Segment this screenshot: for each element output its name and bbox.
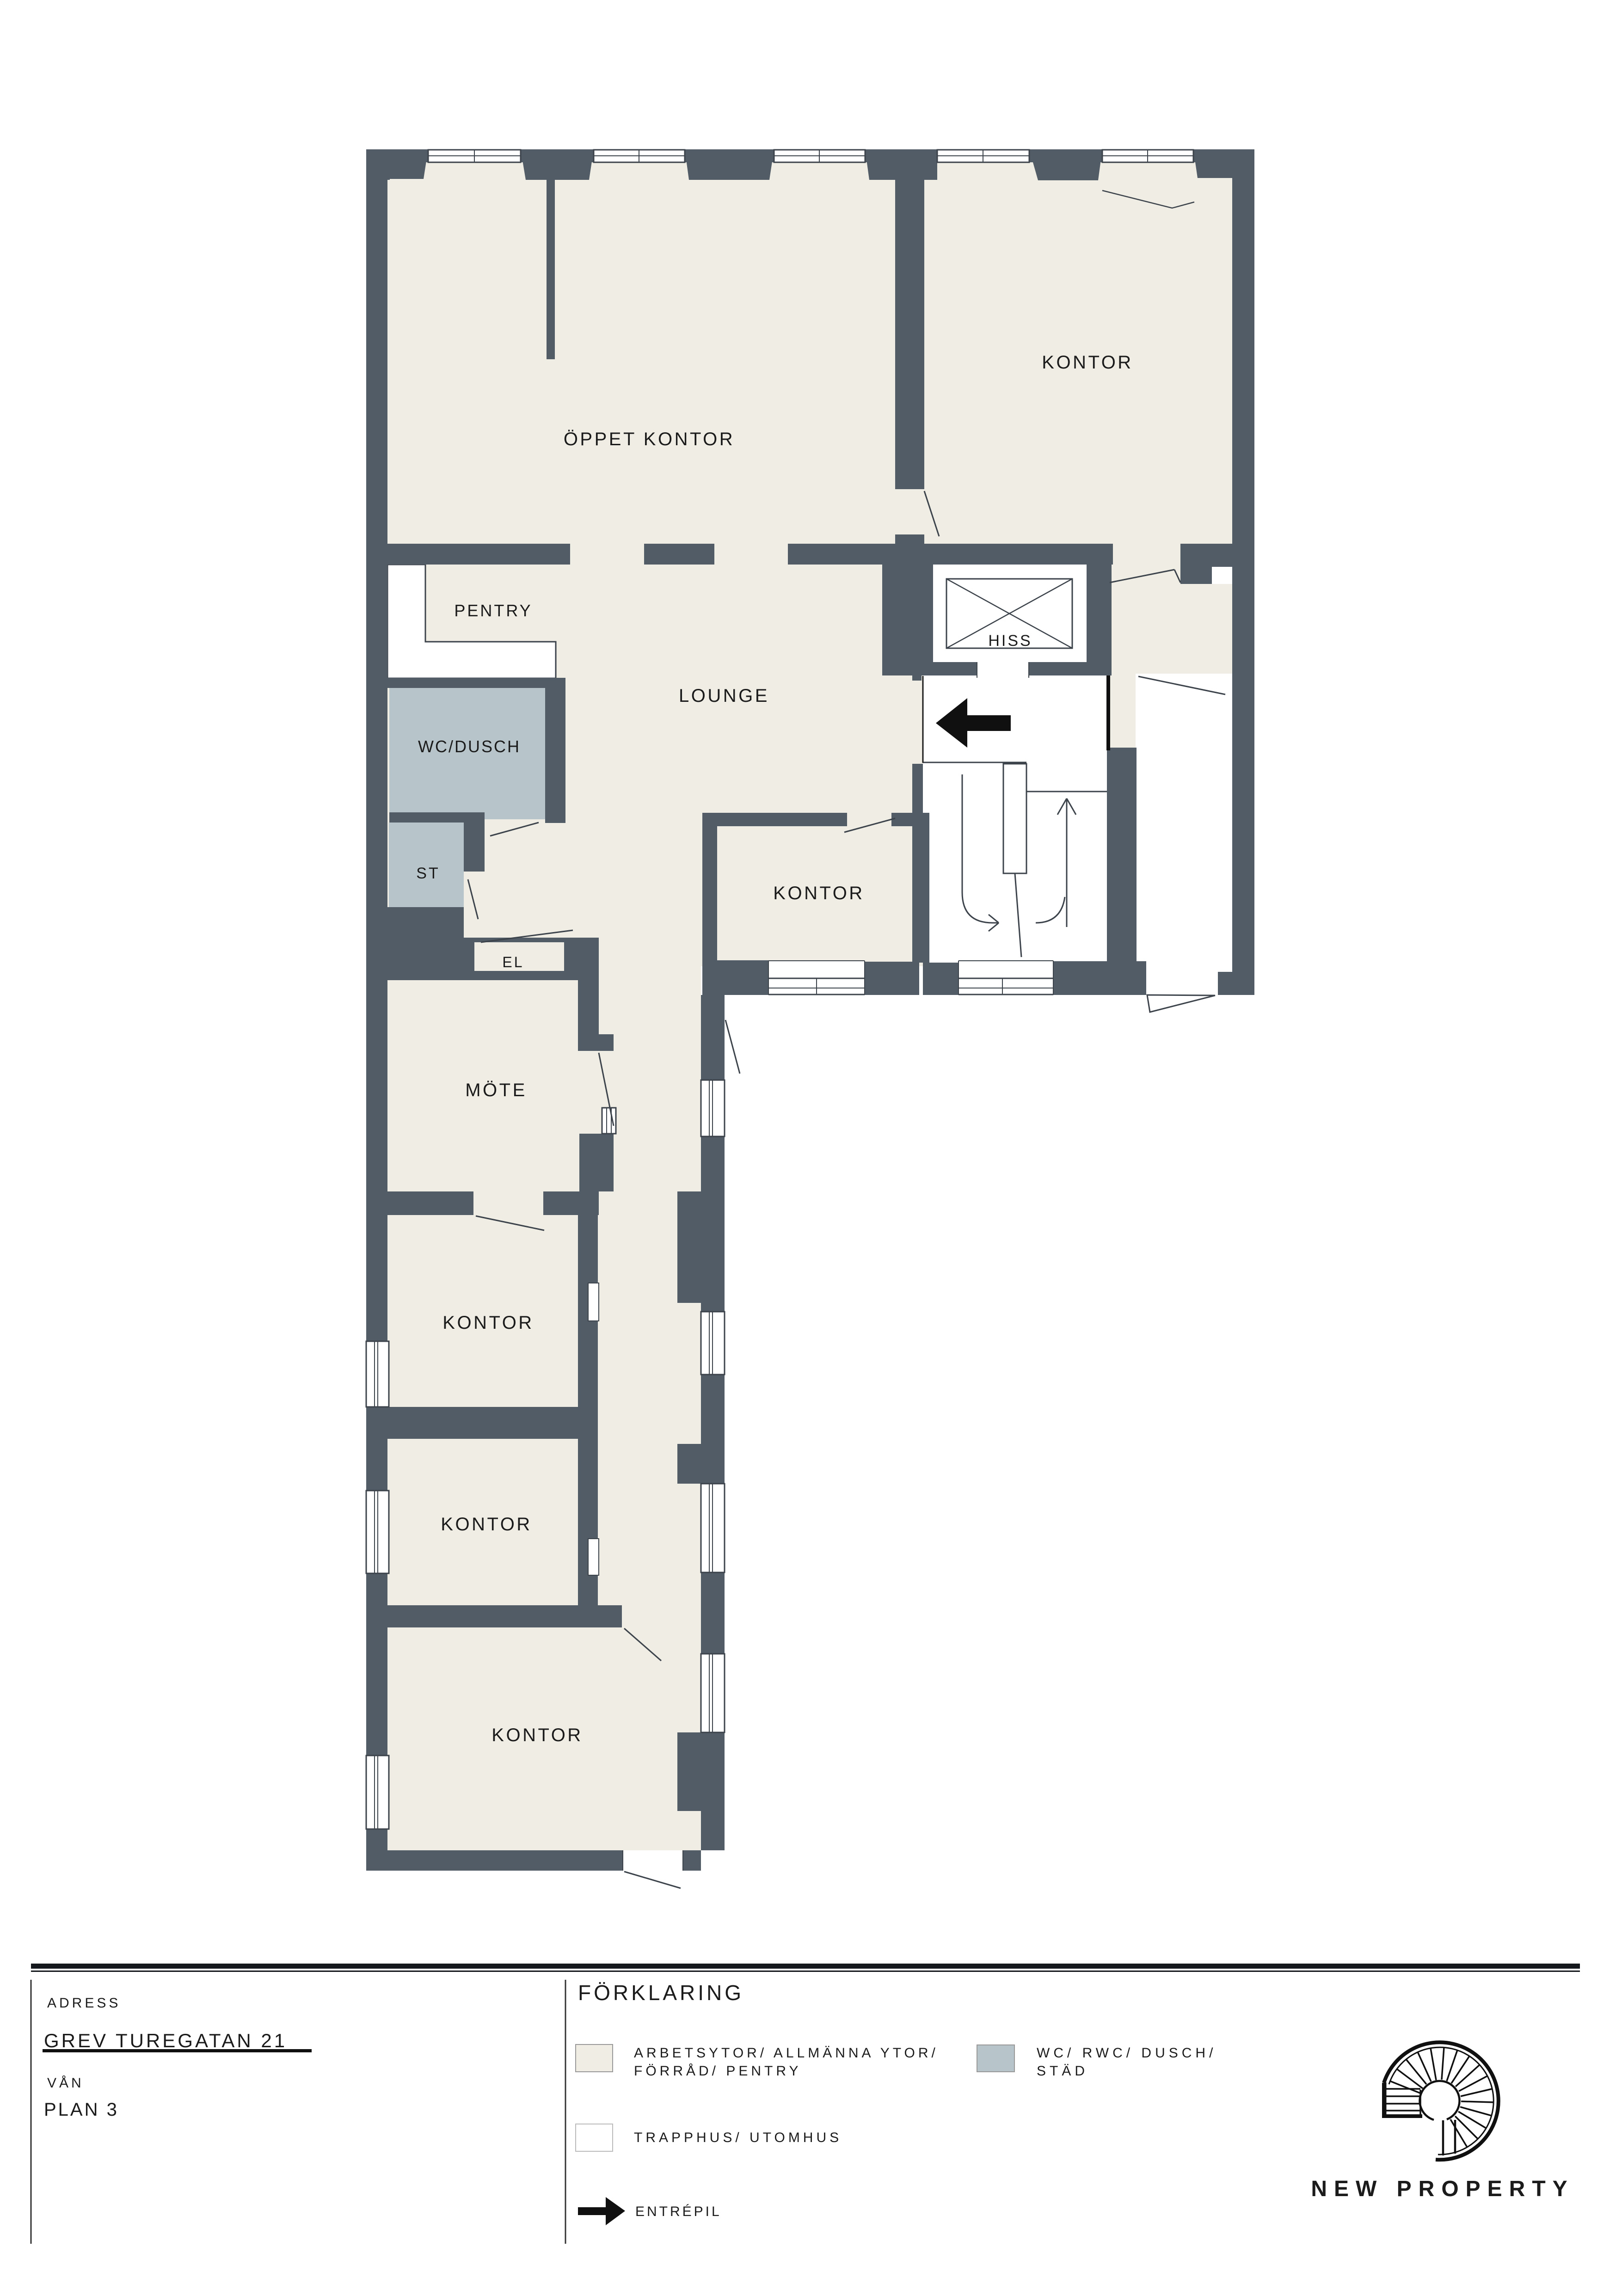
- svg-text:LOUNGE: LOUNGE: [679, 686, 769, 706]
- svg-text:WC/DUSCH: WC/DUSCH: [418, 737, 521, 756]
- svg-text:PLAN 3: PLAN 3: [44, 2100, 119, 2120]
- svg-text:ADRESS: ADRESS: [47, 1995, 121, 2011]
- svg-text:STÄD: STÄD: [1037, 2063, 1088, 2079]
- svg-text:FÖRRÅD/ PENTRY: FÖRRÅD/ PENTRY: [634, 2063, 801, 2079]
- svg-text:ARBETSYTOR/ ALLMÄNNA YTOR/: ARBETSYTOR/ ALLMÄNNA YTOR/: [634, 2045, 939, 2061]
- svg-text:WC/ RWC/ DUSCH/: WC/ RWC/ DUSCH/: [1037, 2045, 1216, 2061]
- svg-text:ST: ST: [416, 865, 440, 882]
- svg-text:KONTOR: KONTOR: [773, 883, 864, 903]
- svg-text:GREV TUREGATAN 21: GREV TUREGATAN 21: [44, 2030, 287, 2051]
- svg-text:HISS: HISS: [988, 632, 1032, 650]
- svg-text:KONTOR: KONTOR: [1042, 352, 1133, 373]
- svg-text:VÅN: VÅN: [47, 2075, 84, 2091]
- svg-text:PENTRY: PENTRY: [454, 601, 532, 620]
- svg-text:ENTRÉPIL: ENTRÉPIL: [635, 2204, 722, 2219]
- svg-text:FÖRKLARING: FÖRKLARING: [578, 1981, 744, 2005]
- svg-text:KONTOR: KONTOR: [492, 1725, 583, 1745]
- svg-text:TRAPPHUS/ UTOMHUS: TRAPPHUS/ UTOMHUS: [634, 2130, 842, 2145]
- svg-text:KONTOR: KONTOR: [441, 1514, 532, 1535]
- svg-text:MÖTE: MÖTE: [465, 1080, 527, 1100]
- svg-text:EL: EL: [502, 954, 524, 970]
- svg-text:KONTOR: KONTOR: [442, 1313, 534, 1333]
- svg-text:NEW PROPERTY: NEW PROPERTY: [1311, 2177, 1574, 2201]
- svg-text:ÖPPET KONTOR: ÖPPET KONTOR: [564, 429, 735, 449]
